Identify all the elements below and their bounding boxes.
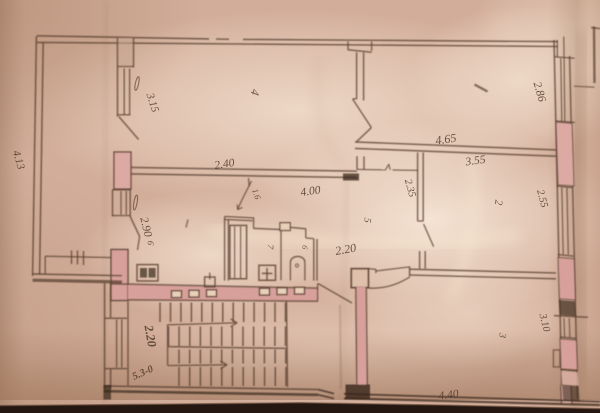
svg-text:5: 5 [361, 217, 372, 223]
svg-text:6: 6 [300, 245, 309, 250]
svg-text:3: 3 [496, 332, 507, 339]
svg-text:4.65: 4.65 [434, 131, 457, 148]
svg-text:4.40: 4.40 [438, 388, 460, 402]
